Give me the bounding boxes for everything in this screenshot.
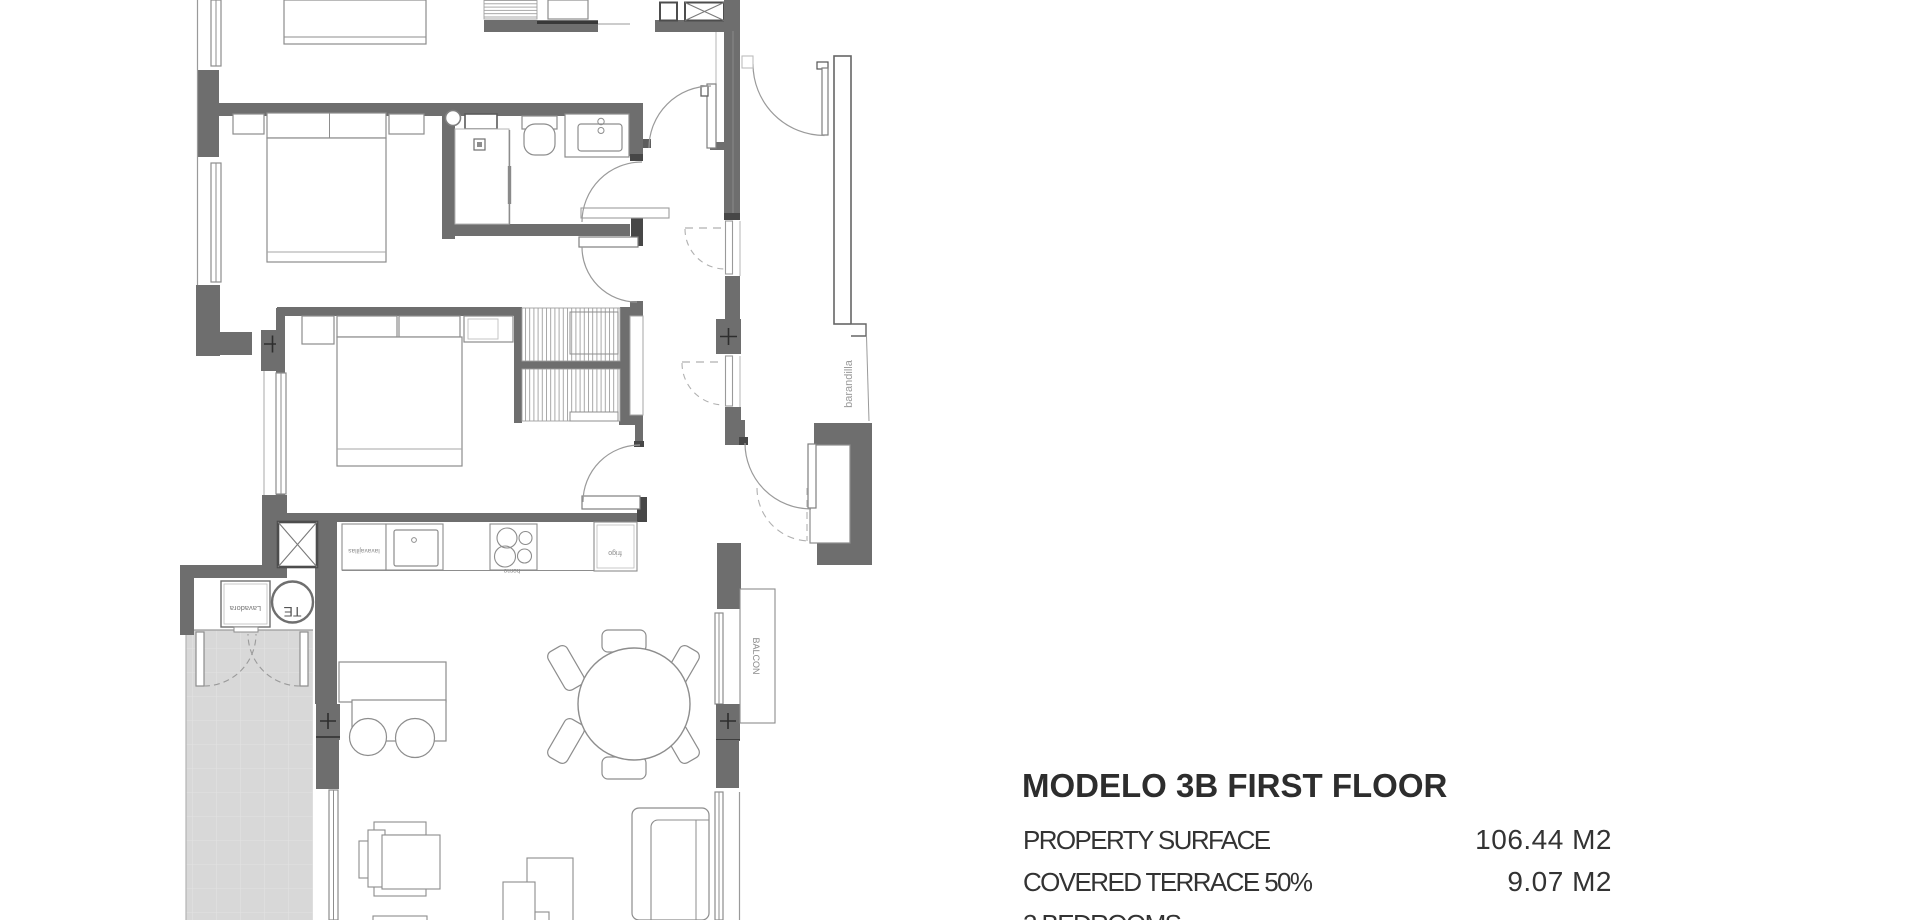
svg-text:3 BEDROOMS: 3 BEDROOMS: [1023, 909, 1182, 920]
svg-text:BALCON: BALCON: [751, 637, 761, 674]
svg-text:MODELO 3B FIRST FLOOR: MODELO 3B FIRST FLOOR: [1022, 767, 1447, 804]
svg-text:barandilla: barandilla: [843, 359, 855, 408]
svg-text:TE: TE: [284, 604, 302, 620]
svg-text:horno: horno: [503, 567, 520, 574]
svg-text:Lavadora: Lavadora: [229, 604, 261, 613]
svg-text:COVERED TERRACE 50%: COVERED TERRACE 50%: [1023, 867, 1313, 897]
svg-text:106.44 M2: 106.44 M2: [1475, 824, 1612, 855]
svg-text:PROPERTY SURFACE: PROPERTY SURFACE: [1023, 825, 1271, 855]
svg-text:frigo: frigo: [608, 549, 622, 556]
svg-text:9.07 M2: 9.07 M2: [1507, 866, 1612, 897]
svg-text:lavavajillas: lavavajillas: [348, 547, 380, 554]
